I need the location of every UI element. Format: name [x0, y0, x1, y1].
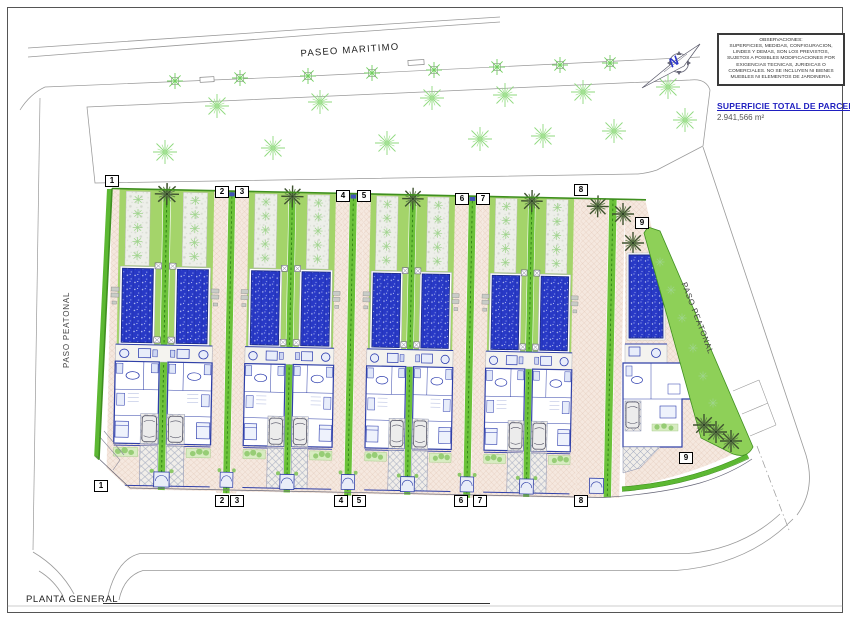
corner-unit-9 [612, 199, 753, 491]
paso-peatonal-left-label: PASO PEATONAL [62, 292, 71, 368]
observations-box: OBSERVACIONES: SUPERFICIES, MEDIDAS, CON… [717, 33, 845, 86]
site-plan-canvas: PASEO MARITIMO PASO PEATONAL PASO PEATON… [0, 0, 850, 620]
observations-line: MUEBLES NI ELEMENTOS DE JARDINERIA. [721, 75, 841, 81]
plot-marker-9-top: 9 [635, 217, 649, 229]
site-plan-drawing [0, 0, 850, 620]
villa-block-4 [477, 189, 581, 498]
plot-marker-top-2: 2 [215, 186, 229, 198]
villa-block-1 [106, 182, 222, 491]
caption-planta-general: PLANTA GENERAL [26, 594, 118, 605]
parcel [90, 182, 753, 498]
villa-block-3 [358, 187, 462, 496]
observations-line: EXIGENCIAS TECNICAS, JURIDICAS O [721, 63, 841, 69]
road-centerline [757, 446, 789, 530]
plot-marker-top-6: 6 [455, 193, 469, 205]
villa-block-2 [236, 185, 343, 494]
plot-marker-9-bottom: 9 [679, 452, 693, 464]
plot-marker-bottom-8: 8 [574, 495, 588, 507]
plot-marker-top-7: 7 [476, 193, 490, 205]
plot-marker-top-8: 8 [574, 184, 588, 196]
plot-marker-bottom-3: 3 [230, 495, 244, 507]
bench [408, 60, 424, 66]
total-area-value: 2.941,566 m² [717, 113, 764, 122]
plot-marker-top-3: 3 [235, 186, 249, 198]
promenade-band [87, 75, 710, 183]
bench [200, 77, 214, 83]
plot-marker-top-5: 5 [357, 190, 371, 202]
diagonal-road [703, 147, 809, 530]
observations-line: SUJETOS A POSIBLES MODIFICACIONES POR [721, 56, 841, 62]
bottom-road [33, 514, 793, 604]
plot-marker-top-1: 1 [105, 175, 119, 187]
left-street-edge [33, 98, 40, 550]
divider-4-wide [575, 195, 625, 498]
observations-line: COMERCIALES. NO SE INCLUYEN NI BIENES [721, 69, 841, 75]
plot-marker-bottom-5: 5 [352, 495, 366, 507]
plot-marker-bottom-2: 2 [215, 495, 229, 507]
plot-marker-bottom-4: 4 [334, 495, 348, 507]
total-area-label: SUPERFICIE TOTAL DE PARCELA [717, 101, 850, 111]
plot-marker-bottom-7: 7 [473, 495, 487, 507]
plot-marker-top-4: 4 [336, 190, 350, 202]
plot-marker-bottom-6: 6 [454, 495, 468, 507]
plot-marker-bottom-1: 1 [94, 480, 108, 492]
